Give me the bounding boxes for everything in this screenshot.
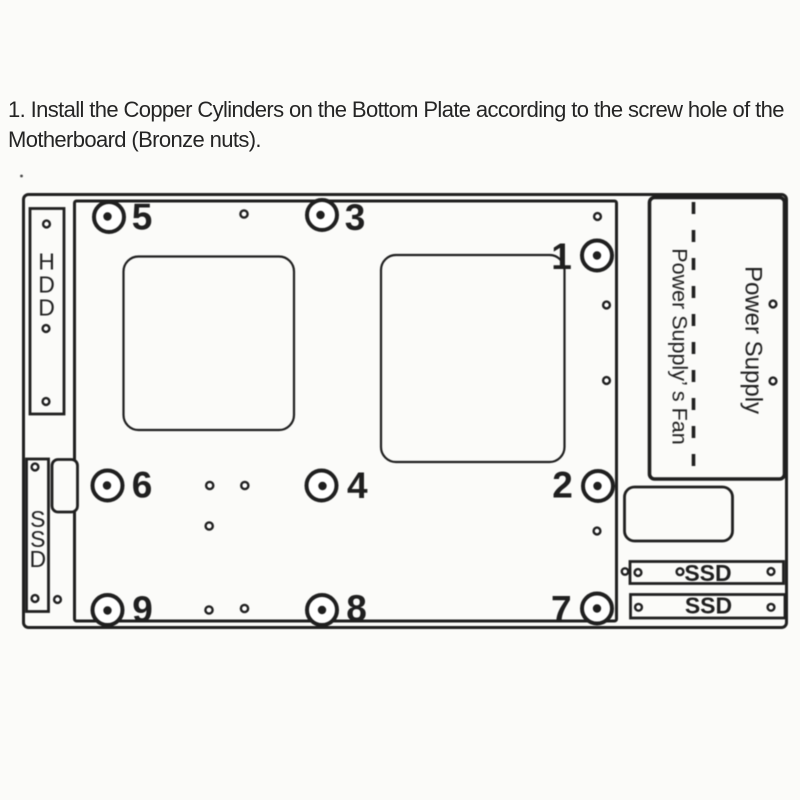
svg-text:SSD: SSD [685, 593, 732, 619]
svg-text:4: 4 [347, 465, 368, 506]
svg-text:Power Supply: Power Supply [740, 266, 767, 414]
svg-text:3: 3 [345, 197, 366, 238]
svg-text:9: 9 [132, 589, 153, 630]
svg-text:D: D [38, 295, 55, 321]
svg-text:8: 8 [346, 588, 367, 629]
svg-text:1: 1 [551, 236, 572, 277]
svg-text:D: D [29, 546, 46, 572]
svg-text:Power Supply’ s Fan: Power Supply’ s Fan [668, 248, 692, 444]
svg-text:5: 5 [132, 197, 153, 238]
svg-text:7: 7 [551, 588, 572, 629]
svg-text:2: 2 [552, 465, 573, 506]
svg-text:6: 6 [132, 465, 153, 506]
svg-text:SSD: SSD [684, 560, 731, 586]
